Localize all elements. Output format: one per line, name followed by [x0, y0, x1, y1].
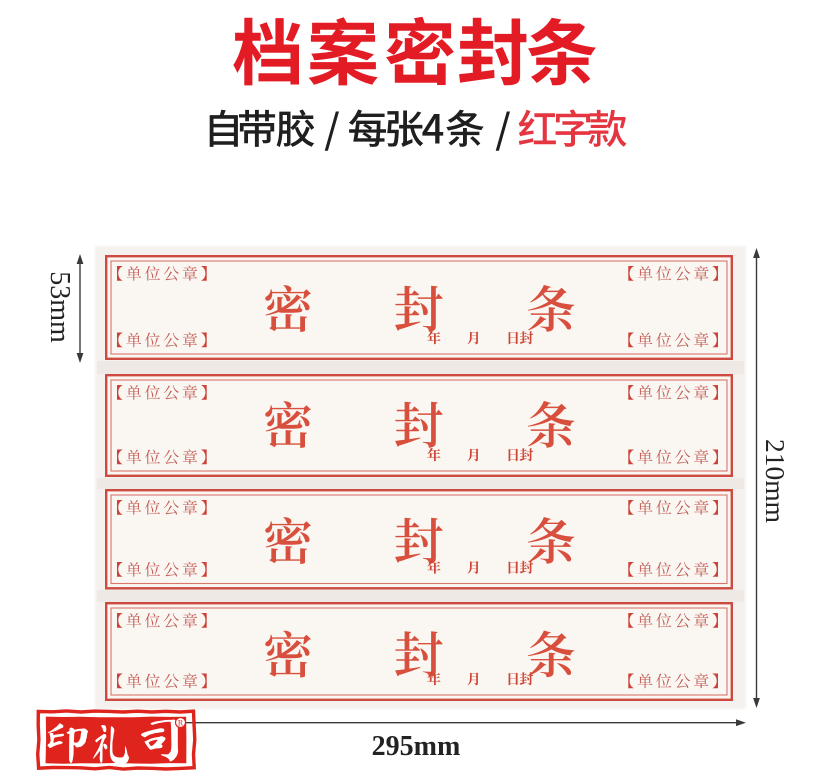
svg-text:295mm: 295mm: [372, 731, 461, 762]
svg-text:53mm: 53mm: [44, 271, 75, 343]
svg-text:210mm: 210mm: [760, 439, 791, 523]
svg-text:R: R: [178, 719, 184, 728]
